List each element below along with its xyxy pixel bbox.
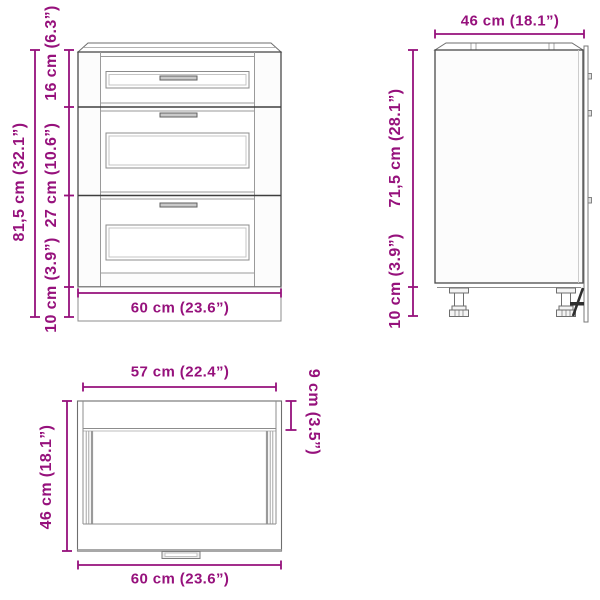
front-drawer-3	[101, 199, 255, 273]
front-drawer-2	[101, 111, 255, 192]
front-plinth-height-label: 10 cm (3.9”)	[43, 237, 61, 333]
top-inner-width-label: 57 cm (22.4”)	[131, 364, 230, 381]
side-panel	[435, 50, 583, 283]
side-leg-left	[450, 288, 469, 317]
drawer-handle	[160, 203, 197, 207]
top-view	[78, 401, 282, 559]
drawer-handle	[160, 113, 197, 117]
side-depth-label: 46 cm (18.1”)	[461, 13, 560, 30]
drawer-handle	[160, 76, 197, 80]
side-front-edge	[584, 46, 588, 322]
front-top-drawer-height-label: 16 cm (6.3”)	[43, 5, 61, 101]
top-depth-label: 46 cm (18.1”)	[38, 425, 56, 530]
front-total-height-label: 81,5 cm (32.1”)	[11, 123, 29, 242]
side-body-height-label: 71,5 cm (28.1”)	[387, 89, 405, 208]
side-handle-profile	[588, 74, 592, 80]
top-outline	[78, 401, 282, 551]
front-mid-drawer-height-label: 27 cm (10.6”)	[43, 123, 61, 228]
top-front-offset-label: 9 cm (3.5”)	[304, 369, 322, 455]
cabinet-dimension-diagram: 81,5 cm (32.1”) 16 cm (6.3”) 27 cm (10.6…	[0, 0, 600, 600]
side-leg-height-label: 10 cm (3.9”)	[387, 233, 405, 329]
side-top-panel	[435, 43, 583, 50]
side-handle-profile	[588, 111, 592, 117]
side-view	[435, 43, 592, 322]
front-drawer-1	[101, 57, 255, 104]
top-outer-width-label: 60 cm (23.6”)	[131, 571, 230, 588]
front-view	[78, 43, 281, 321]
top-handle	[162, 552, 200, 559]
diagram-linework	[0, 0, 600, 600]
front-width-label: 60 cm (23.6”)	[131, 300, 230, 317]
side-handle-profile	[588, 198, 592, 204]
